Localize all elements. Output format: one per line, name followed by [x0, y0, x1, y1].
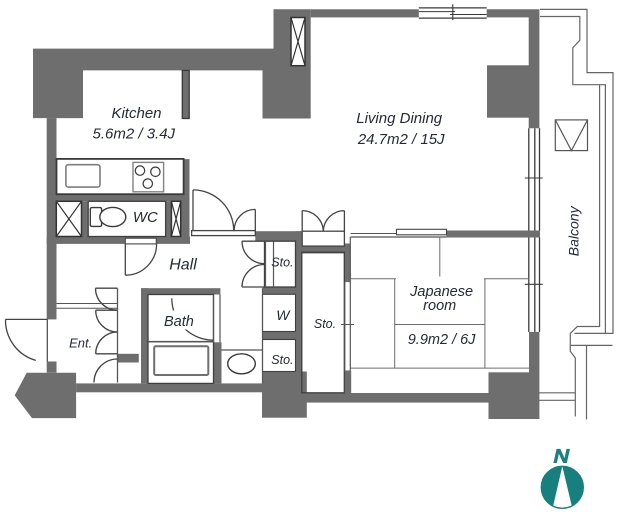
svg-text:W: W [276, 307, 291, 323]
svg-text:Living Dining: Living Dining [356, 110, 443, 127]
svg-text:room: room [423, 298, 456, 314]
svg-text:24.7m2 / 15J: 24.7m2 / 15J [357, 131, 445, 148]
svg-text:Sto.: Sto. [314, 317, 336, 331]
svg-text:5.6m2 / 3.4J: 5.6m2 / 3.4J [93, 126, 176, 143]
svg-text:Bath: Bath [164, 314, 194, 330]
svg-text:9.9m2 / 6J: 9.9m2 / 6J [408, 332, 476, 348]
svg-text:WC: WC [133, 209, 158, 226]
svg-text:Kitchen: Kitchen [111, 105, 161, 122]
svg-text:Ent.: Ent. [69, 336, 92, 351]
svg-text:Sto.: Sto. [271, 353, 293, 367]
svg-text:Balcony: Balcony [565, 205, 581, 256]
svg-text:Sto.: Sto. [271, 256, 293, 270]
svg-text:Hall: Hall [169, 257, 197, 274]
